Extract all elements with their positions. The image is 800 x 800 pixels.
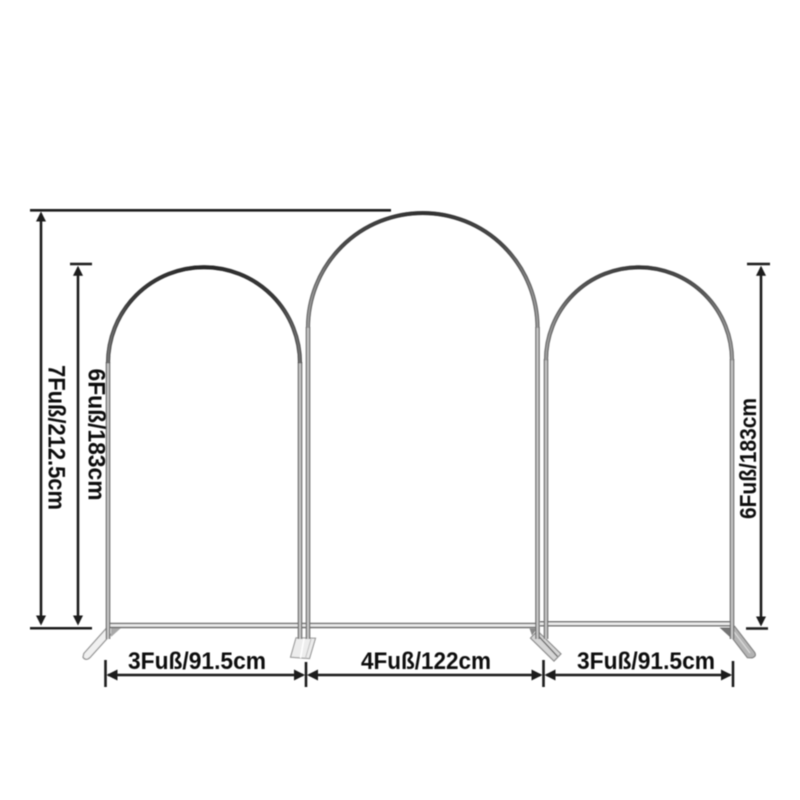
svg-text:3Fuß/91.5cm: 3Fuß/91.5cm [128, 648, 266, 675]
svg-text:7Fuß/212.5cm: 7Fuß/212.5cm [43, 365, 70, 510]
svg-text:6Fuß/183cm: 6Fuß/183cm [735, 398, 761, 519]
svg-text:3Fuß/91.5cm: 3Fuß/91.5cm [577, 648, 715, 675]
svg-text:6Fuß/183cm: 6Fuß/183cm [83, 369, 110, 501]
svg-text:4Fuß/122cm: 4Fuß/122cm [361, 648, 491, 675]
